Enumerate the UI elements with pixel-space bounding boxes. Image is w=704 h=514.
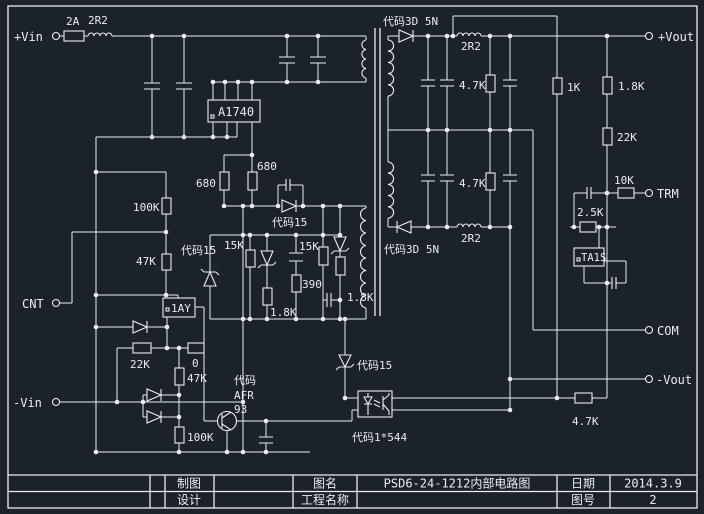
optocoupler-box [358, 391, 392, 417]
resistor-4k7-b [486, 173, 495, 190]
label-code15-b: 代码15 [181, 244, 216, 257]
label-cnt: CNT [22, 297, 44, 311]
cap-small-mid [327, 293, 331, 307]
resistor-47k-b [175, 368, 184, 385]
titleblock-date-label: 日期 [571, 477, 595, 491]
terminal-vin-neg[interactable] [53, 399, 60, 406]
label-q-2: AFR [234, 389, 254, 402]
primary-winding-top [362, 40, 366, 78]
label-q-1: 代码 [234, 374, 256, 387]
terminal-trm[interactable] [646, 190, 653, 197]
titleblock-drafter-label: 制图 [177, 477, 201, 491]
label-fuse: 2A [66, 15, 80, 28]
cad-drawing-window: +Vin 2A 2R2 A1740 680 680 代码15 100K 47K … [0, 0, 704, 514]
transformer-core [375, 28, 380, 316]
junction-dots [94, 34, 610, 455]
diode-cnt [133, 321, 147, 333]
label-vout-neg: -Vout [656, 373, 692, 387]
label-1k8-c: 1.8K [618, 80, 645, 93]
input-inductor-symbol [88, 33, 112, 36]
zener-mid [258, 251, 276, 268]
label-code15-a: 代码15 [272, 216, 307, 229]
resistor-0 [188, 343, 204, 353]
label-47k-a: 47K [136, 255, 156, 268]
resistor-1k [553, 78, 562, 94]
label-1k8-a: 1.8K [270, 306, 297, 319]
zener-code15-c [336, 355, 354, 370]
cap-transistor [259, 437, 273, 443]
label-vout-pos: +Vout [658, 30, 694, 44]
transformer [360, 28, 393, 316]
label-vin-neg: -Vin [13, 396, 42, 410]
fuse-symbol [64, 31, 84, 41]
titleblock-designer-label: 设计 [177, 493, 201, 507]
label-10k: 10K [614, 174, 634, 187]
resistor-2k5 [580, 222, 596, 232]
label-22k-a: 22K [130, 358, 150, 371]
titleblock-sheet-value: 2 [649, 493, 656, 507]
label-ind-sec-b: 2R2 [461, 232, 481, 245]
label-pwm-ic: A1740 [218, 105, 254, 119]
diode-code15-a [282, 200, 296, 212]
label-390: 390 [302, 278, 322, 291]
cap-parallel-diode [286, 179, 290, 191]
label-4k7-a: 4.7K [459, 79, 486, 92]
label-1k8-b: 1.8K [347, 291, 374, 304]
label-680-b: 680 [257, 160, 277, 173]
cap-shunt [612, 277, 616, 289]
label-0: 0 [192, 357, 199, 370]
label-100k-b: 100K [187, 431, 214, 444]
label-trm: TRM [657, 187, 679, 201]
label-1k: 1K [567, 81, 581, 94]
resistor-10k [618, 188, 634, 198]
terminal-cnt[interactable] [53, 300, 60, 307]
resistor-22k-b [603, 128, 612, 145]
resistor-1k8-a [263, 288, 272, 305]
label-3d5n-b: 代码3D 5N [384, 243, 439, 256]
terminal-vin-pos[interactable] [53, 33, 60, 40]
title-block: 制图 图名 PSD6-24-1212内部电路图 日期 2014.3.9 设计 工… [8, 475, 697, 508]
resistor-100k-b [175, 427, 184, 443]
label-680-a: 680 [196, 177, 216, 190]
terminal-vout-neg[interactable] [646, 376, 653, 383]
terminal-com[interactable] [646, 327, 653, 334]
diode-3d5n-a [399, 30, 413, 42]
label-ind-sec-a: 2R2 [461, 40, 481, 53]
diode-3d5n-b [397, 221, 411, 233]
label-code15-c: 代码15 [357, 359, 392, 372]
pwm-ic-marker [211, 115, 214, 118]
label-ref-ic: 1AY [171, 302, 191, 315]
resistor-15k-b [319, 247, 328, 265]
label-47k-b: 47K [187, 372, 207, 385]
label-15k-a: 15K [224, 239, 244, 252]
label-15k-b: 15K [299, 240, 319, 253]
resistor-680-b [248, 172, 257, 190]
diode-pair [147, 389, 161, 423]
resistor-4k7-c [575, 393, 592, 403]
label-q-3: 93 [234, 403, 247, 416]
resistor-390 [292, 275, 301, 292]
resistor-1k8-c [603, 77, 612, 94]
secondary-winding-top [388, 40, 394, 96]
resistor-100k-a [162, 198, 171, 214]
terminal-vout-pos[interactable] [646, 33, 653, 40]
cap-trm [587, 187, 591, 199]
label-22k-b: 22K [617, 131, 637, 144]
cap-mid [289, 253, 303, 261]
label-vin-pos: +Vin [14, 30, 43, 44]
resistor-4k7-a [486, 75, 495, 92]
titleblock-sheet-label: 图号 [571, 493, 595, 507]
label-100k-a: 100K [133, 201, 160, 214]
zener-right [331, 237, 349, 254]
components [64, 30, 634, 443]
wires [59, 16, 645, 452]
resistor-680-a [220, 172, 229, 190]
label-2k5: 2.5K [577, 206, 604, 219]
sec-inductor-b [457, 224, 481, 227]
sec-inductor-a [457, 33, 481, 36]
label-com: COM [657, 324, 679, 338]
secondary-winding-bottom [388, 162, 394, 218]
resistor-22k-a [133, 343, 151, 353]
label-opto: 代码1*544 [352, 431, 407, 444]
label-4k7-b: 4.7K [459, 177, 486, 190]
label-4k7-c: 4.7K [572, 415, 599, 428]
titleblock-date-value: 2014.3.9 [624, 477, 682, 491]
label-3d5n-a: 代码3D 5N [383, 15, 438, 28]
label-ind-in: 2R2 [88, 14, 108, 27]
label-shunt-ic: TA1S [581, 252, 606, 264]
ref-ic-marker [166, 308, 169, 311]
zener-code15-b [201, 269, 219, 286]
titleblock-drawing-name-label: 图名 [313, 476, 337, 491]
titleblock-drawing-name: PSD6-24-1212内部电路图 [384, 476, 531, 491]
resistor-1k8-b [336, 257, 345, 275]
titleblock-project-label: 工程名称 [301, 492, 349, 507]
resistor-47k-a [162, 254, 171, 270]
input-capacitors [144, 57, 326, 89]
resistor-15k-a [246, 250, 255, 267]
schematic-canvas[interactable]: +Vin 2A 2R2 A1740 680 680 代码15 100K 47K … [0, 0, 704, 514]
